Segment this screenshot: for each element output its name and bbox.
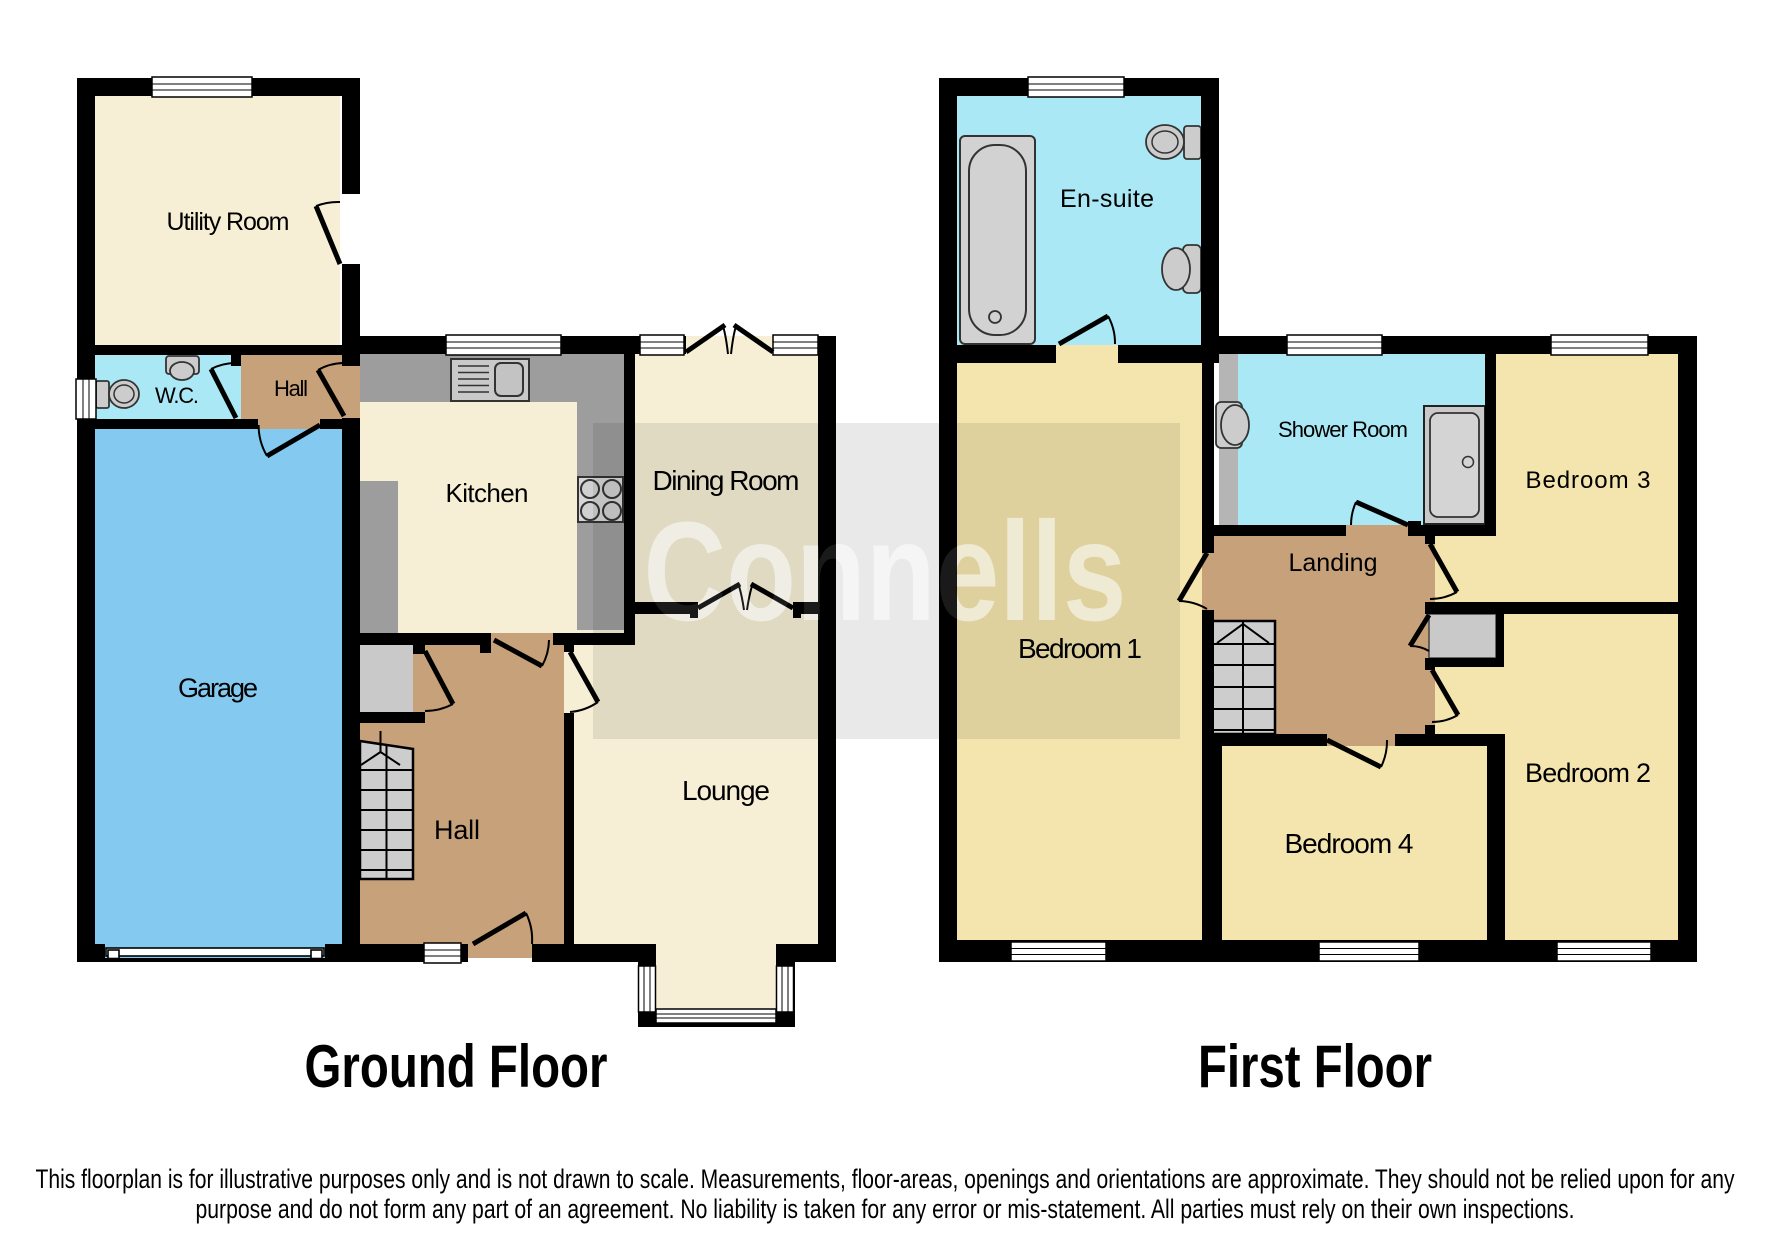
svg-text:Bedroom 3: Bedroom 3 xyxy=(1526,467,1651,494)
svg-text:Landing: Landing xyxy=(1289,549,1378,577)
svg-text:Ground Floor: Ground Floor xyxy=(305,1033,608,1100)
svg-text:Dining Room: Dining Room xyxy=(653,465,800,496)
svg-text:Hall: Hall xyxy=(434,815,480,845)
svg-text:Hall: Hall xyxy=(274,376,308,401)
svg-text:Utility Room: Utility Room xyxy=(167,208,290,236)
svg-text:Bedroom 1: Bedroom 1 xyxy=(1018,633,1142,664)
svg-text:Bedroom 4: Bedroom 4 xyxy=(1285,828,1414,859)
svg-text:Lounge: Lounge xyxy=(682,775,770,806)
svg-text:Garage: Garage xyxy=(178,673,258,703)
svg-text:Connells: Connells xyxy=(644,492,1127,650)
svg-text:Kitchen: Kitchen xyxy=(446,478,529,508)
svg-text:W.C.: W.C. xyxy=(155,383,199,408)
svg-text:Shower Room: Shower Room xyxy=(1278,417,1408,442)
svg-text:First Floor: First Floor xyxy=(1198,1033,1432,1100)
svg-text:Bedroom 2: Bedroom 2 xyxy=(1525,758,1651,788)
svg-text:This floorplan is for illustra: This floorplan is for illustrative purpo… xyxy=(36,1164,1735,1194)
svg-text:purpose and do not form any pa: purpose and do not form any part of an a… xyxy=(196,1194,1575,1224)
svg-text:En-suite: En-suite xyxy=(1060,185,1154,213)
